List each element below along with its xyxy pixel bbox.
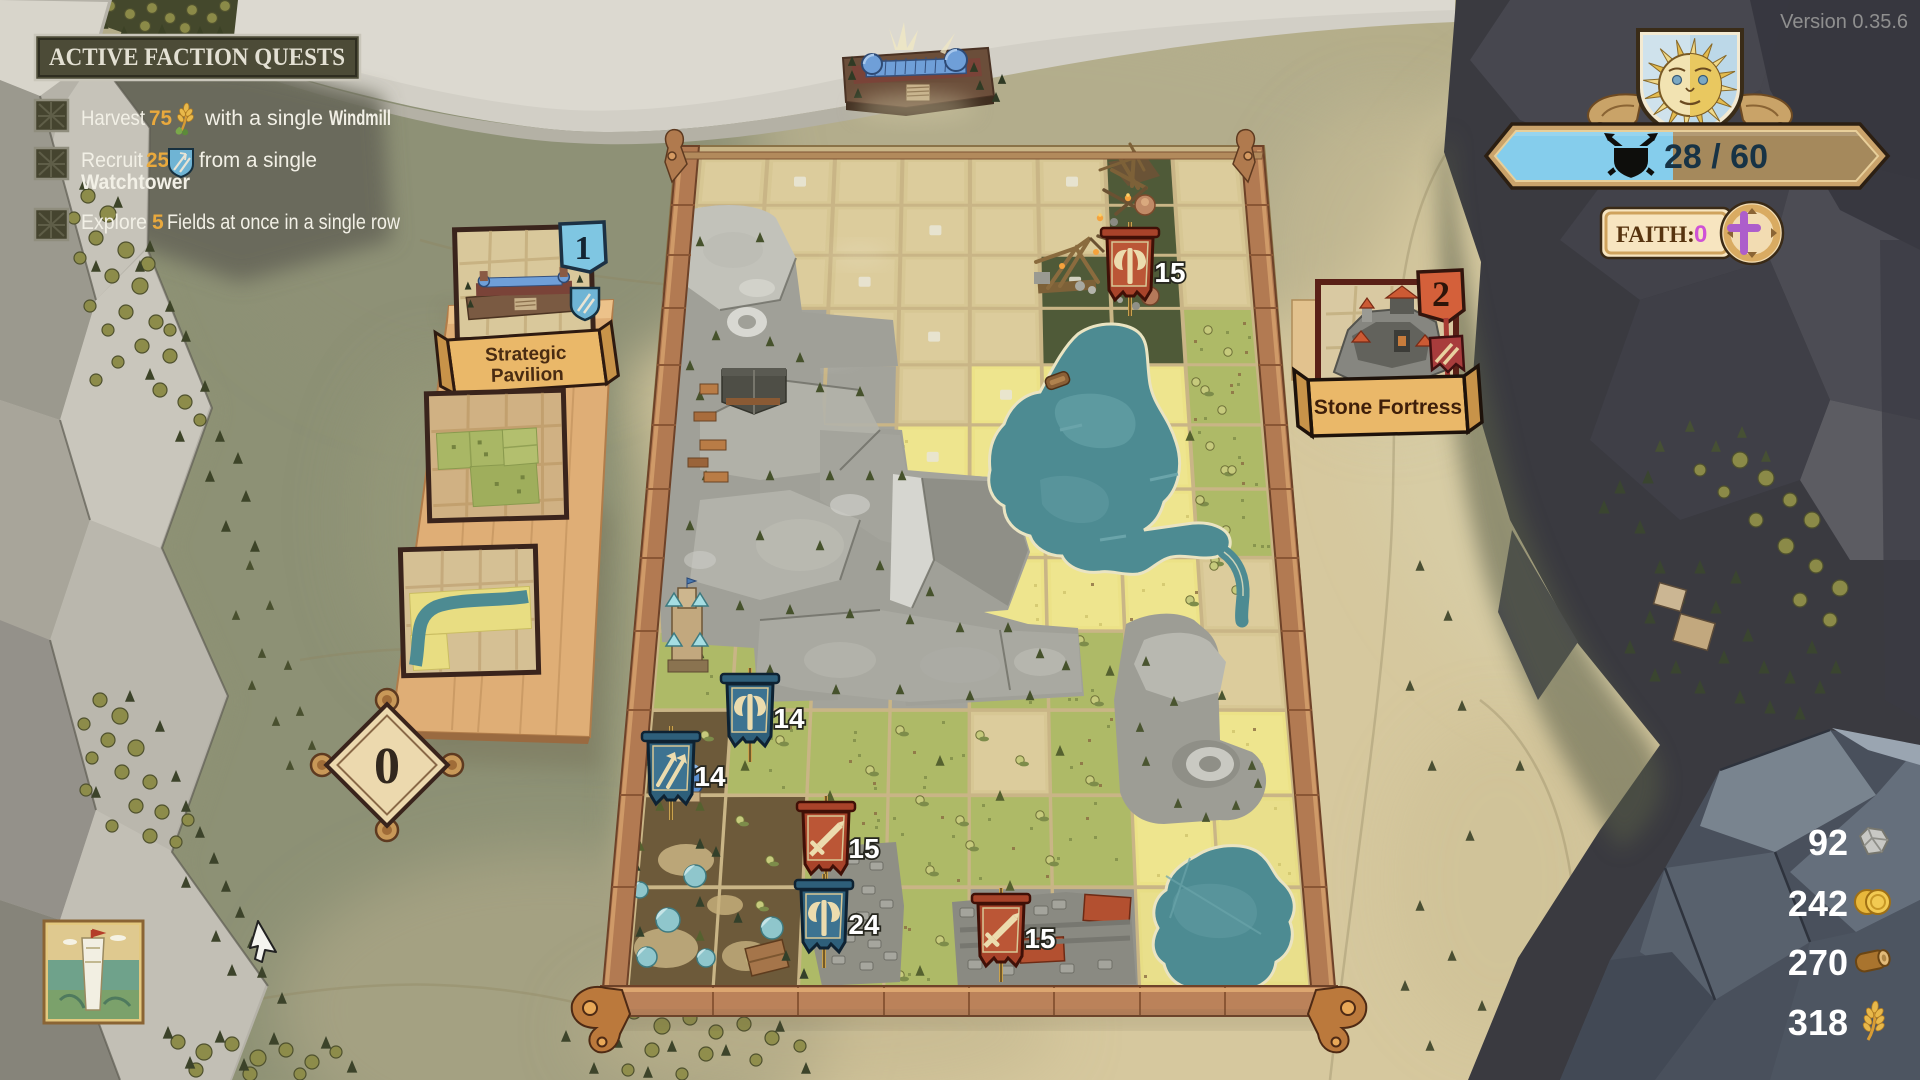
svg-text:1: 1 [575,230,592,267]
svg-text:318: 318 [1788,1002,1848,1043]
svg-text:Harvest: Harvest [81,107,145,130]
svg-text:Version 0.35.6: Version 0.35.6 [1780,11,1908,33]
svg-text:270: 270 [1788,942,1848,983]
svg-text:with a single: with a single [204,107,323,130]
svg-text:2: 2 [1432,274,1450,314]
svg-text:Fields at once in a single row: Fields at once in a single row [167,211,401,234]
svg-text:75: 75 [149,107,172,130]
svg-text:from a single: from a single [199,149,317,172]
svg-text:24: 24 [848,909,880,940]
svg-text:Recruit: Recruit [81,149,143,172]
svg-text:15: 15 [848,833,879,864]
svg-text:0: 0 [1694,221,1707,248]
svg-text:Explore: Explore [81,211,147,234]
svg-text:Windmill: Windmill [329,107,391,130]
svg-text:92: 92 [1808,822,1848,863]
svg-text:15: 15 [1154,257,1185,288]
svg-text:25: 25 [146,149,169,172]
svg-text:FAITH:: FAITH: [1616,222,1695,247]
svg-text:0: 0 [374,738,400,795]
svg-text:14: 14 [694,761,726,792]
svg-text:242: 242 [1788,883,1848,924]
svg-text:5: 5 [152,211,164,234]
svg-text:15: 15 [1024,923,1055,954]
svg-text:Stone Fortress: Stone Fortress [1314,396,1462,419]
svg-text:ACTIVE FACTION QUESTS: ACTIVE FACTION QUESTS [49,44,345,71]
svg-text:28 / 60: 28 / 60 [1664,138,1768,176]
svg-text:Pavilion: Pavilion [491,364,564,387]
svg-text:Strategic: Strategic [485,343,567,366]
svg-text:14: 14 [773,703,805,734]
